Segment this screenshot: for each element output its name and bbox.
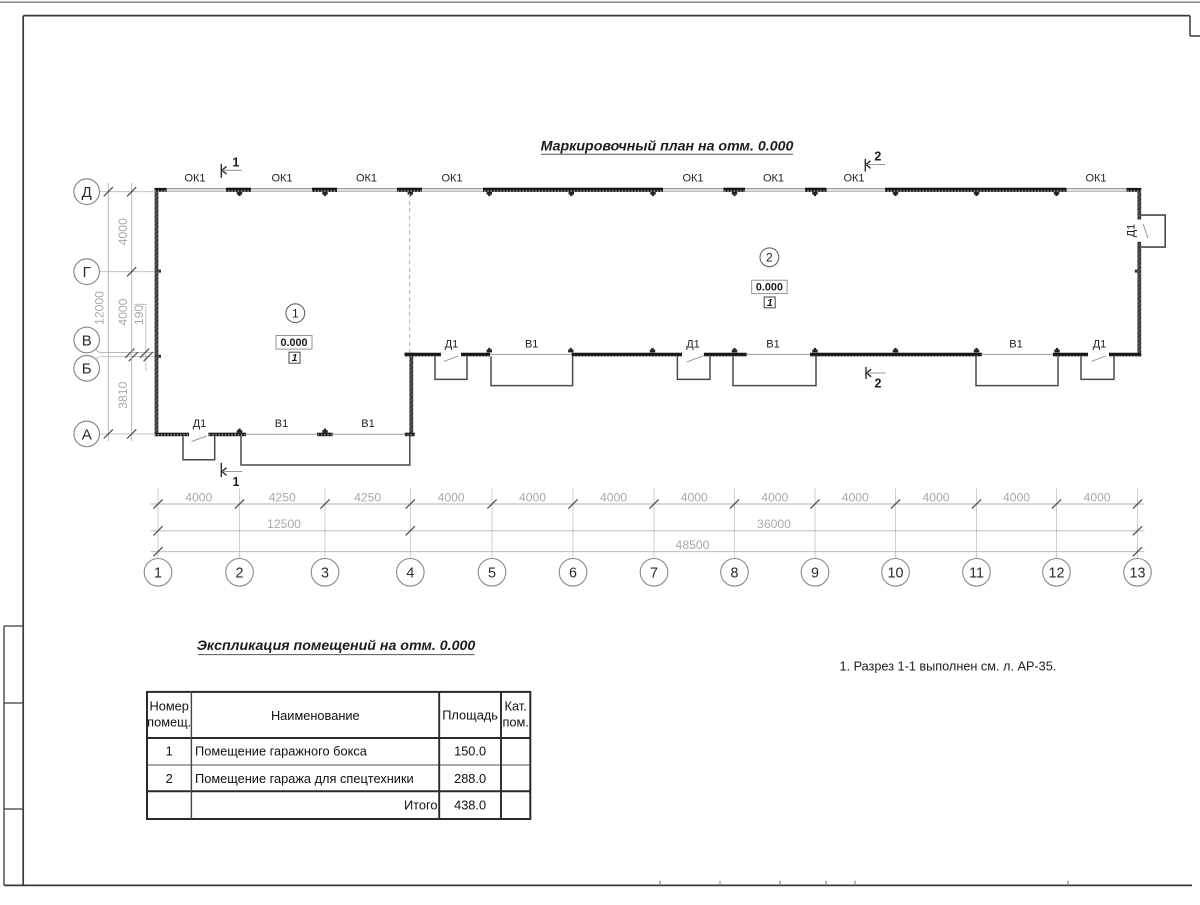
- svg-text:4000: 4000: [438, 490, 465, 504]
- svg-text:48500: 48500: [676, 538, 710, 552]
- svg-text:Б: Б: [82, 361, 92, 378]
- svg-text:4000: 4000: [681, 490, 708, 504]
- svg-text:2: 2: [166, 771, 173, 786]
- svg-text:0.000: 0.000: [756, 282, 783, 294]
- svg-text:ОК1: ОК1: [441, 172, 462, 184]
- svg-text:1: 1: [292, 352, 298, 364]
- svg-text:3: 3: [321, 565, 329, 581]
- svg-text:5: 5: [488, 565, 496, 581]
- svg-text:пом.: пом.: [502, 714, 528, 729]
- svg-text:4000: 4000: [600, 490, 627, 504]
- svg-text:ОК1: ОК1: [682, 172, 703, 184]
- svg-text:Д1: Д1: [1093, 339, 1107, 351]
- svg-text:ОК1: ОК1: [356, 172, 377, 184]
- svg-text:4000: 4000: [761, 490, 788, 504]
- svg-text:В1: В1: [275, 418, 288, 430]
- svg-text:В: В: [82, 332, 92, 349]
- svg-text:4000: 4000: [842, 490, 869, 504]
- svg-text:2: 2: [766, 251, 773, 265]
- svg-text:Д1: Д1: [686, 339, 700, 351]
- svg-text:1: 1: [292, 307, 299, 321]
- svg-text:4000: 4000: [1003, 490, 1030, 504]
- svg-text:11: 11: [969, 565, 984, 581]
- svg-text:помещ.: помещ.: [147, 714, 191, 729]
- svg-text:9: 9: [811, 565, 819, 581]
- svg-text:Д1: Д1: [193, 418, 207, 430]
- svg-text:12: 12: [1049, 565, 1065, 581]
- svg-text:Площадь: Площадь: [442, 707, 498, 722]
- svg-text:Г: Г: [83, 264, 91, 281]
- svg-text:Маркировочный план на отм. 0.0: Маркировочный план на отм. 0.000: [541, 139, 794, 155]
- svg-text:4: 4: [406, 565, 414, 581]
- svg-text:190: 190: [132, 305, 146, 326]
- svg-text:В1: В1: [361, 418, 374, 430]
- svg-text:6: 6: [569, 565, 577, 581]
- svg-text:3810: 3810: [116, 381, 130, 408]
- svg-text:Наименование: Наименование: [271, 708, 360, 723]
- svg-text:В1: В1: [766, 339, 779, 351]
- svg-text:150.0: 150.0: [454, 743, 486, 758]
- svg-text:2: 2: [236, 565, 244, 581]
- svg-text:ОК1: ОК1: [843, 172, 864, 184]
- svg-text:Итого: Итого: [404, 797, 438, 812]
- svg-text:10: 10: [888, 565, 904, 581]
- svg-text:13: 13: [1130, 565, 1146, 581]
- svg-text:8: 8: [731, 565, 739, 581]
- svg-text:1: 1: [767, 297, 773, 309]
- svg-text:А: А: [82, 426, 92, 443]
- svg-text:Экспликация помещений на отм.: Экспликация помещений на отм. 0.000: [197, 638, 476, 654]
- svg-text:4000: 4000: [116, 298, 130, 325]
- svg-text:ОК1: ОК1: [271, 172, 292, 184]
- svg-text:ОК1: ОК1: [184, 172, 205, 184]
- svg-text:4250: 4250: [354, 490, 381, 504]
- svg-text:В1: В1: [1009, 339, 1022, 351]
- svg-text:Помещение гаражного бокса: Помещение гаражного бокса: [195, 743, 368, 758]
- svg-text:4250: 4250: [269, 490, 296, 504]
- svg-text:288.0: 288.0: [454, 771, 486, 786]
- svg-text:0.000: 0.000: [280, 337, 307, 349]
- svg-text:ОК1: ОК1: [1085, 172, 1106, 184]
- svg-text:1: 1: [233, 475, 240, 489]
- svg-text:Помещение гаража для спецтехни: Помещение гаража для спецтехники: [195, 771, 414, 786]
- svg-text:4000: 4000: [922, 490, 949, 504]
- svg-text:1: 1: [154, 565, 162, 581]
- svg-text:7: 7: [650, 565, 658, 581]
- svg-text:Д: Д: [82, 184, 92, 201]
- svg-text:4000: 4000: [185, 490, 212, 504]
- svg-text:2: 2: [874, 150, 881, 164]
- svg-text:12500: 12500: [267, 517, 301, 531]
- svg-text:2: 2: [875, 376, 882, 390]
- svg-text:438.0: 438.0: [454, 797, 486, 812]
- svg-text:12000: 12000: [93, 291, 107, 325]
- svg-text:Номер: Номер: [150, 699, 189, 714]
- svg-text:Д1: Д1: [1126, 224, 1138, 238]
- svg-text:В1: В1: [525, 339, 538, 351]
- svg-text:36000: 36000: [757, 517, 791, 531]
- svg-text:1: 1: [232, 155, 239, 169]
- svg-text:1: 1: [166, 743, 173, 758]
- svg-text:Д1: Д1: [445, 339, 459, 351]
- svg-text:4000: 4000: [519, 490, 546, 504]
- svg-text:ОК1: ОК1: [763, 172, 784, 184]
- svg-text:1. Разрез 1-1 выполнен см. л.: 1. Разрез 1-1 выполнен см. л. АР-35.: [840, 659, 1057, 673]
- svg-text:Кат.: Кат.: [505, 699, 527, 714]
- svg-text:4000: 4000: [116, 218, 130, 245]
- svg-text:4000: 4000: [1083, 490, 1110, 504]
